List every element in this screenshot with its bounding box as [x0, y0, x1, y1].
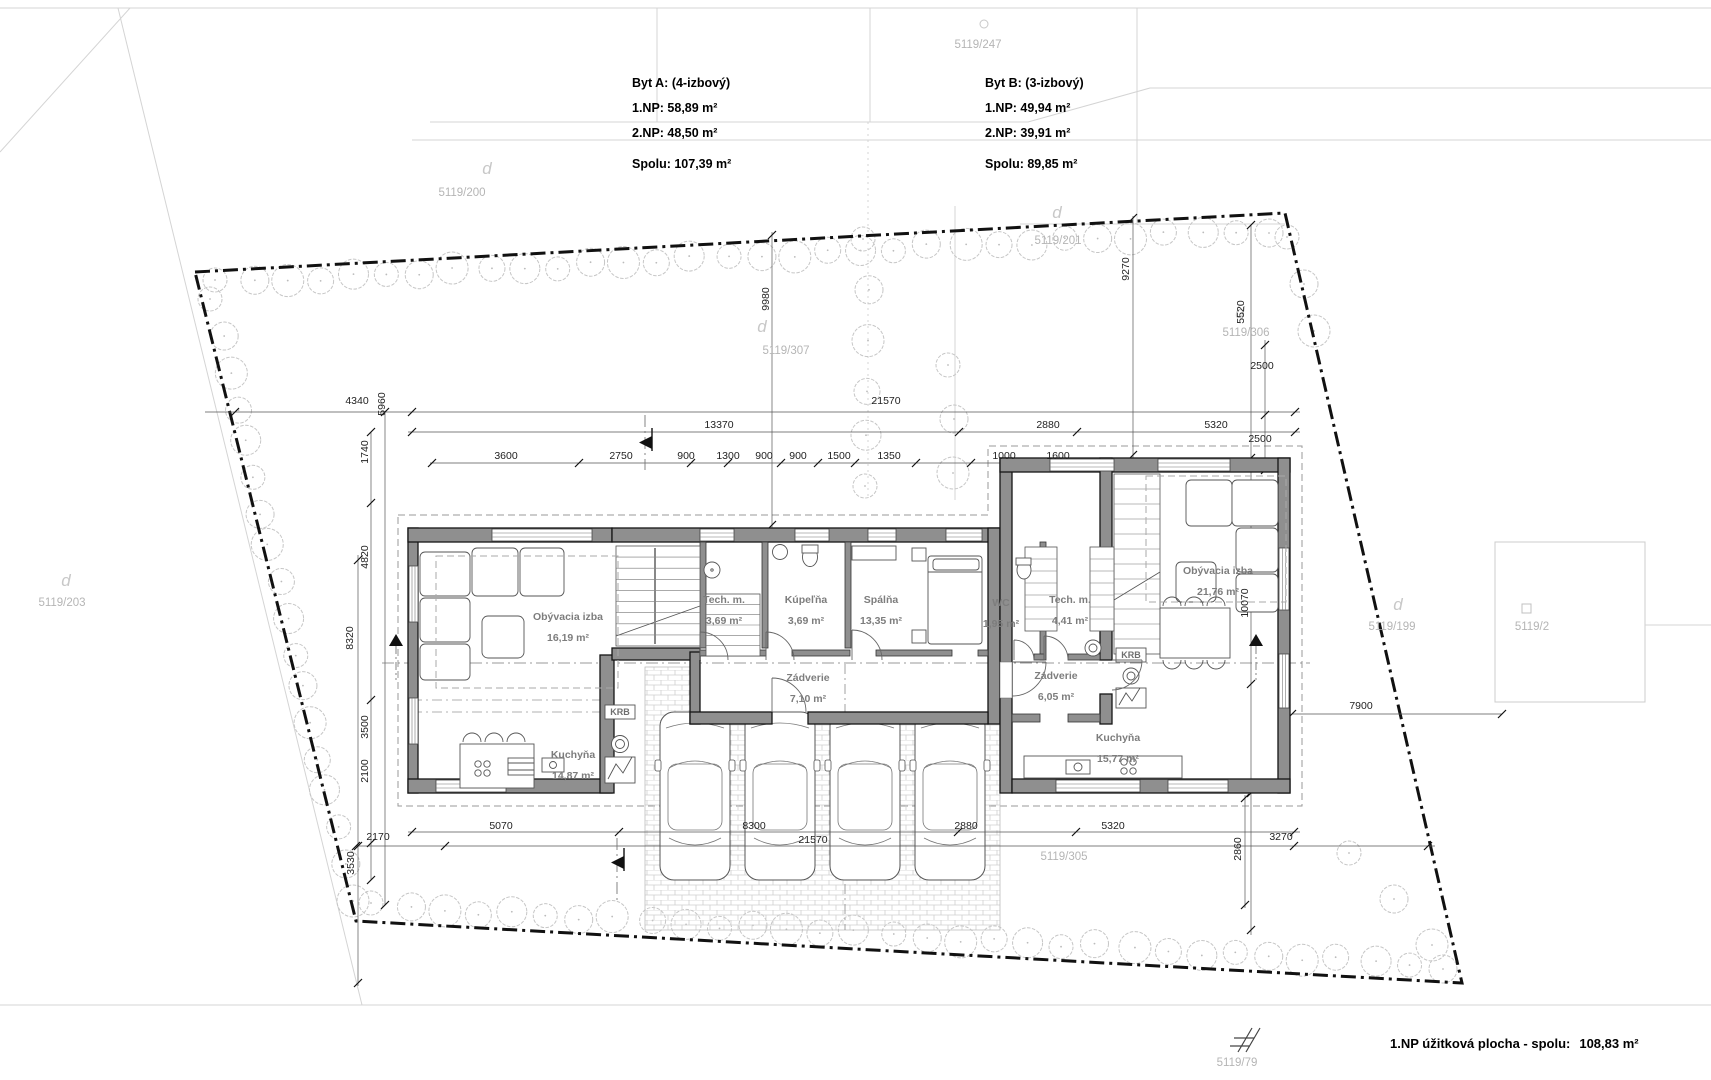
- dim-text: 5320: [1101, 820, 1125, 832]
- dim-text: 5520: [1235, 300, 1247, 324]
- dim-text: 9980: [760, 287, 772, 311]
- room-area: 3,69 m²: [788, 615, 825, 627]
- room-area: 13,35 m²: [860, 615, 903, 627]
- parcel-label: 5119/200: [438, 187, 485, 199]
- floor-area-summary-label: 1.NP úžitková plocha - spolu:: [1390, 1036, 1570, 1051]
- floor-area-summary-value: 108,83 m²: [1579, 1036, 1639, 1051]
- parcel-label: 5119/307: [762, 345, 809, 357]
- room-area: 7,10 m²: [790, 693, 827, 705]
- room-area: 4,41 m²: [1052, 615, 1089, 627]
- dim-text: 2880: [954, 820, 978, 832]
- fireplace-label: KRB: [610, 707, 630, 717]
- room-name: Tech. m.: [1049, 594, 1091, 606]
- room-name: Zádverie: [786, 672, 829, 684]
- room-area: 14,87 m²: [552, 770, 595, 782]
- dim-text: 900: [789, 450, 807, 462]
- room-name: Tech. m.: [703, 594, 745, 606]
- dim-text: 2500: [1250, 360, 1274, 372]
- dim-text: 1350: [877, 450, 901, 462]
- dim-text: 2170: [366, 831, 390, 843]
- parcel-label: 5119/2: [1515, 621, 1549, 633]
- parcel-d-glyph: d: [1052, 203, 1062, 222]
- room-area: 21,76 m²: [1197, 586, 1240, 598]
- dim-text: 8320: [344, 626, 356, 650]
- parcel-d-glyph: d: [61, 571, 71, 590]
- room-name: Obývacia izba: [533, 611, 603, 623]
- parcel-label: 5119/247: [954, 39, 1001, 51]
- parcel-d-glyph: d: [1393, 595, 1403, 614]
- parcel-label: 5119/79: [1217, 1057, 1258, 1069]
- floorplan-sheet: Byt A: (4-izbový) 1.NP: 58,89 m² 2.NP: 4…: [0, 0, 1711, 1080]
- byt-a-title: Byt A: (4-izbový): [632, 76, 730, 90]
- byt-a-total: Spolu: 107,39 m²: [632, 157, 731, 171]
- dim-text: 13370: [704, 419, 733, 431]
- room-name: Zádverie: [1034, 670, 1077, 682]
- room-name: Kuchyňa: [1096, 732, 1141, 744]
- dim-text: 2750: [609, 450, 633, 462]
- dim-text: 5320: [1204, 419, 1228, 431]
- dim-text: 4340: [345, 395, 369, 407]
- dim-text: 3500: [359, 715, 371, 739]
- room-name: Obývacia izba: [1183, 565, 1253, 577]
- parcel-label: 5119/199: [1368, 621, 1415, 633]
- dim-text: 900: [755, 450, 773, 462]
- room-area: 3,69 m²: [706, 615, 743, 627]
- parcel-d-glyph: d: [757, 317, 767, 336]
- fireplace-label: KRB: [1121, 650, 1141, 660]
- dim-text: 2100: [359, 759, 371, 783]
- dim-text: 3530: [345, 851, 357, 875]
- byt-b-title: Byt B: (3-izbový): [985, 76, 1084, 90]
- dim-text: 4820: [359, 545, 371, 569]
- parcel-label: 5119/305: [1040, 851, 1087, 863]
- dim-text: 10070: [1239, 588, 1251, 617]
- dim-text: 1300: [716, 450, 740, 462]
- dim-text: 2860: [1232, 837, 1244, 861]
- dim-text: 1500: [827, 450, 851, 462]
- byt-b-total: Spolu: 89,85 m²: [985, 157, 1077, 171]
- room-name: Kuchyňa: [551, 749, 596, 761]
- byt-a-np2: 2.NP: 48,50 m²: [632, 126, 717, 140]
- dim-text: 1600: [1046, 450, 1070, 462]
- floor-area-summary: 1.NP úžitková plocha - spolu:108,83 m²: [1390, 1036, 1639, 1051]
- room-name: WC: [992, 597, 1010, 609]
- entry-door-opening: [1000, 662, 1012, 698]
- dim-text: 8300: [742, 820, 766, 832]
- byt-b-np1: 1.NP: 49,94 m²: [985, 101, 1070, 115]
- dim-text: 2880: [1036, 419, 1060, 431]
- dim-text: 3600: [494, 450, 518, 462]
- byt-a-np1: 1.NP: 58,89 m²: [632, 101, 717, 115]
- dim-text: 5960: [376, 392, 388, 416]
- room-area: 1,95 m²: [983, 618, 1020, 630]
- parcel-label: 5119/201: [1034, 235, 1081, 247]
- dim-text: 21570: [871, 395, 900, 407]
- dim-text: 3270: [1269, 831, 1293, 843]
- parcel-label: 5119/306: [1222, 327, 1269, 339]
- dim-text: 5070: [489, 820, 513, 832]
- room-name: Kúpeľňa: [785, 594, 828, 606]
- parcel-d-glyph: d: [482, 159, 492, 178]
- dim-text: 900: [677, 450, 695, 462]
- dim-text: 2500: [1248, 433, 1272, 445]
- dim-text: 9270: [1120, 257, 1132, 281]
- parcel-label: 5119/203: [38, 597, 85, 609]
- room-name: Spálňa: [864, 594, 899, 606]
- dim-text: 1740: [359, 440, 371, 464]
- byt-b-np2: 2.NP: 39,91 m²: [985, 126, 1070, 140]
- dim-text: 1000: [992, 450, 1016, 462]
- dim-text: 7900: [1349, 700, 1373, 712]
- floorplan-drawing: Byt A: (4-izbový) 1.NP: 58,89 m² 2.NP: 4…: [0, 0, 1711, 1080]
- room-area: 16,19 m²: [547, 632, 590, 644]
- room-area: 6,05 m²: [1038, 691, 1075, 703]
- dim-text: 21570: [798, 834, 827, 846]
- room-area: 15,77 m²: [1097, 753, 1140, 765]
